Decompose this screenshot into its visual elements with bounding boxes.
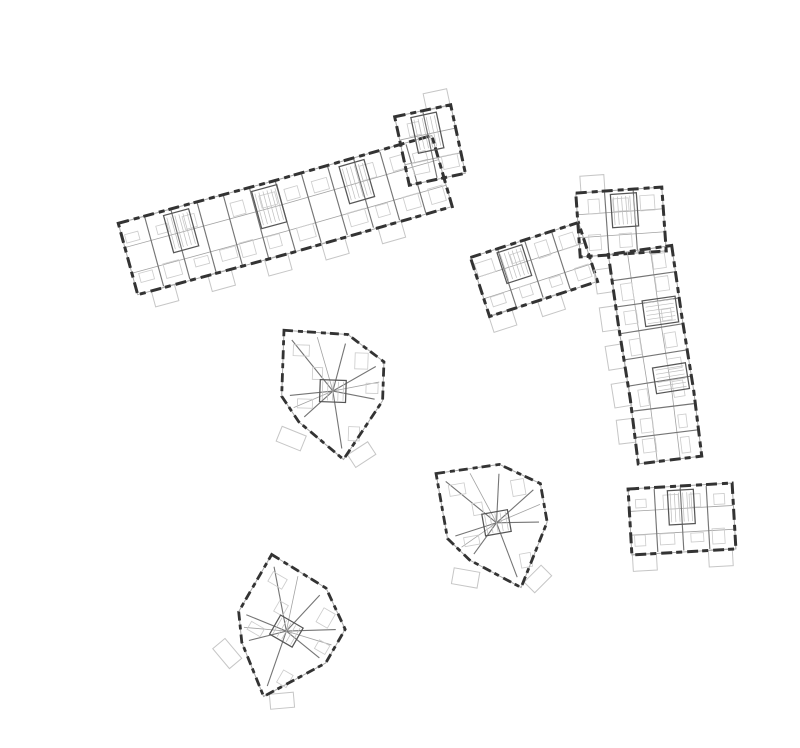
building-point-house-2	[432, 456, 559, 607]
building-east-l-corner	[576, 175, 666, 257]
building-point-house-3	[201, 553, 359, 722]
building-east-l-spine	[594, 245, 702, 463]
building-point-house-1	[275, 330, 385, 468]
building-north-slab-end-block	[395, 89, 466, 185]
site-plan-page	[0, 0, 800, 748]
building-east-l-foot	[628, 483, 736, 571]
floorplan-canvas	[0, 0, 800, 748]
building-north-slab	[118, 135, 452, 306]
